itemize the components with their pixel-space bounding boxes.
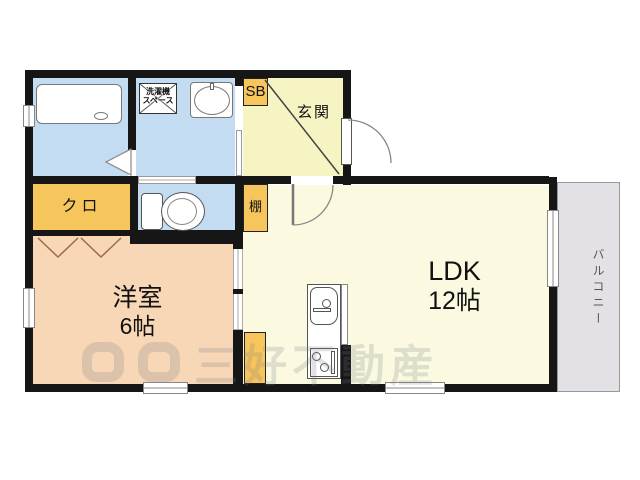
wall-under-toilet	[130, 230, 243, 244]
label-entrance: 玄関	[288, 104, 340, 121]
label-laundry-line1: 洗濯機	[139, 87, 177, 96]
sliding-door-tick-mid	[233, 289, 243, 294]
ldk-door-opening	[291, 176, 333, 184]
label-ldk: LDK 12帖	[382, 256, 527, 316]
wall-entrance-right-upper	[343, 70, 351, 118]
wall-mid-2	[196, 176, 291, 184]
wall-east-top	[235, 70, 243, 86]
watermark-logo-arch-2	[138, 342, 180, 382]
watermark: 三好不動産	[82, 330, 439, 394]
front-door-leaf	[341, 118, 352, 165]
toilet-seat	[167, 198, 197, 225]
ldk-size: 12帖	[382, 287, 527, 316]
basin-faucet	[210, 83, 214, 90]
basin-bowl	[194, 86, 230, 115]
wall-top	[25, 70, 351, 78]
window-western-left	[23, 288, 35, 328]
wall-east-toilet	[235, 184, 243, 244]
ldk-name: LDK	[382, 256, 527, 287]
kitchen-sink-drain	[322, 299, 331, 308]
window-balcony-door	[547, 210, 559, 287]
front-door-arc	[348, 120, 391, 163]
sliding-door-panel	[236, 130, 242, 176]
western-room-name: 洋室	[60, 284, 215, 313]
label-shoebox: SB	[243, 83, 268, 100]
wall-mid-1	[25, 176, 138, 184]
kitchen-faucet	[313, 308, 331, 312]
sliding-door-tick-top	[233, 244, 243, 249]
wall-mid-3	[333, 176, 549, 184]
label-shelf: 棚	[243, 200, 268, 215]
watermark-logo-arch-1	[82, 342, 124, 382]
label-closet: クロ	[33, 198, 130, 216]
label-balcony: バルコニー	[576, 248, 604, 398]
sliding-door-washroom-toilet	[138, 176, 196, 184]
bathtub-drain	[94, 112, 108, 120]
window-bathroom-left	[23, 105, 35, 127]
wall-under-closet	[25, 230, 135, 236]
toilet-tank	[141, 193, 163, 230]
label-laundry-line2: スペース	[139, 96, 177, 105]
wall-closet-divider	[130, 184, 138, 232]
sliding-door-western-ldk	[233, 244, 243, 330]
sliding-door-entrance-washroom	[235, 86, 243, 130]
label-laundry-space: 洗濯機 スペース	[139, 87, 177, 105]
watermark-text: 三好不動産	[194, 330, 439, 394]
floor-plan: 洗濯機 スペース SB 玄関 クロ 棚 洋室 6帖 LDK 12帖 バルコニー …	[0, 0, 640, 480]
wall-bath-divider	[128, 78, 136, 150]
bathtub	[36, 84, 122, 124]
